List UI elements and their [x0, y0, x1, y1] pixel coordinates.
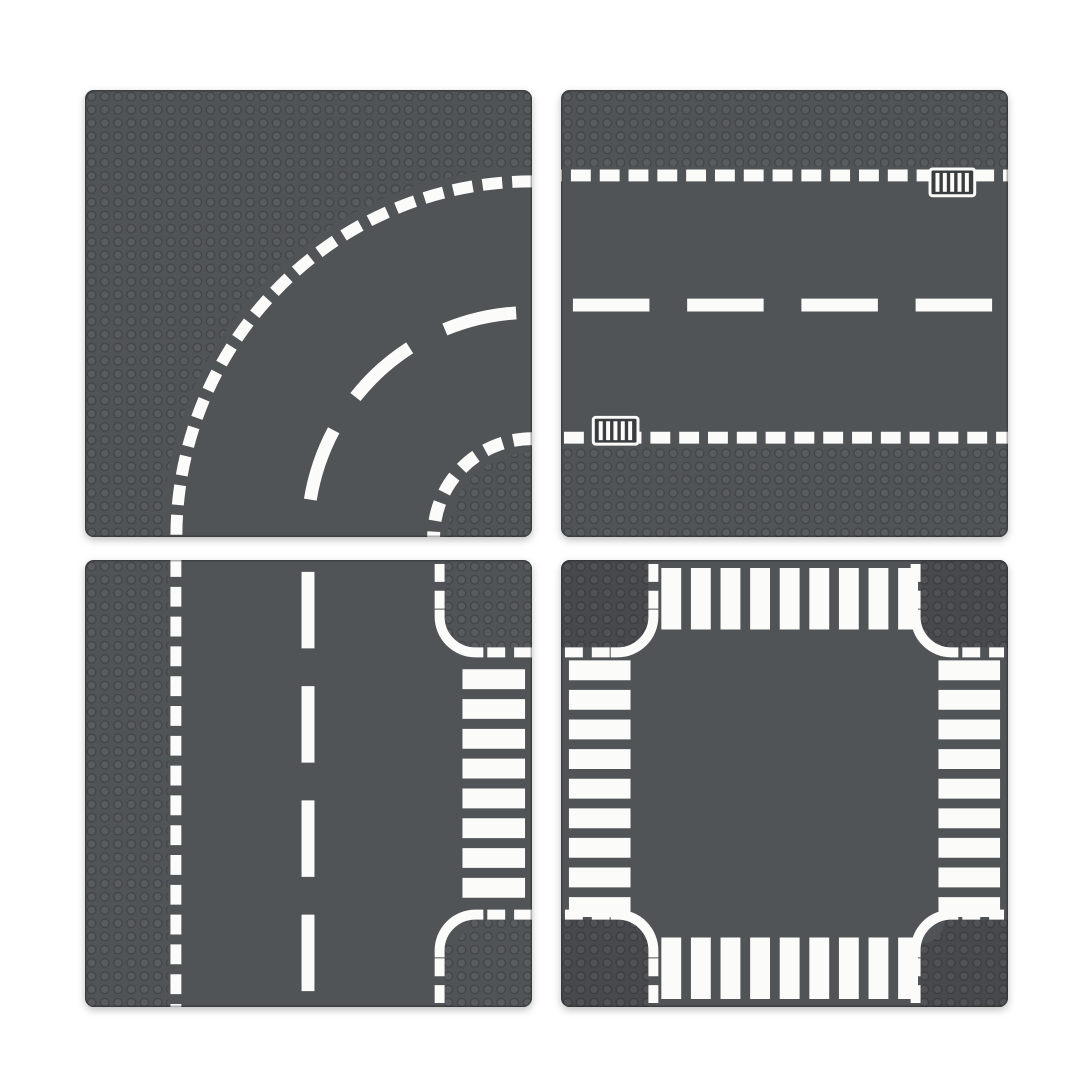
plate-t-junction [85, 560, 532, 1007]
stud-strip-top [561, 90, 1008, 166]
corner-stud-block-bottom-left [561, 920, 648, 1007]
plate-straight-road [561, 90, 1008, 537]
product-image [0, 0, 1080, 1080]
corner-stud-block-top-right [445, 560, 532, 647]
stud-strip-bottom [561, 448, 1008, 537]
drain-grate-top-right [930, 169, 975, 196]
plate-crossroad [561, 560, 1008, 1007]
corner-stud-block-top-left [561, 560, 648, 647]
corner-stud-block-top-right [921, 560, 1008, 647]
drain-grate-bottom-left [593, 417, 638, 444]
plate-curved-road [85, 90, 532, 537]
stud-strip-left [85, 560, 168, 1007]
